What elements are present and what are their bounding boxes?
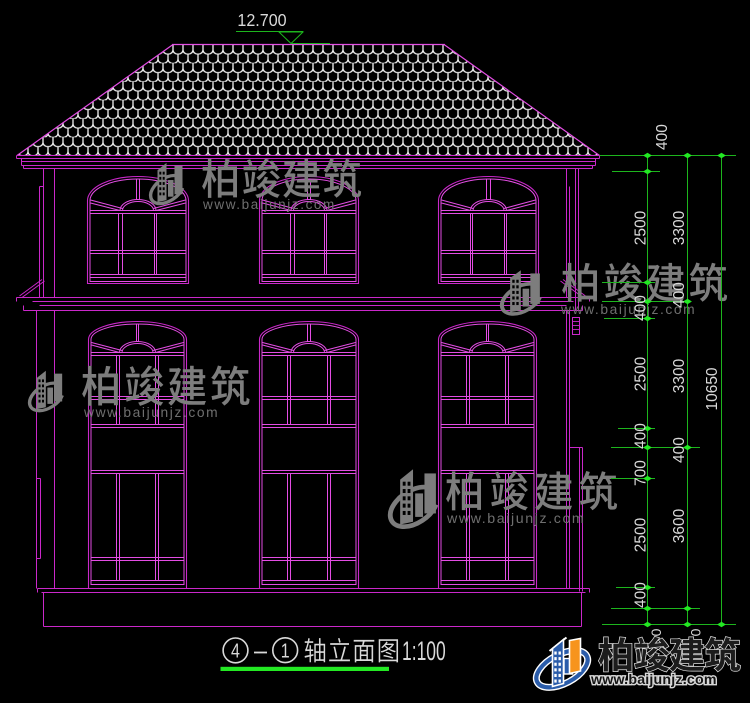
svg-text:2500: 2500 [633,356,650,391]
svg-text:400: 400 [633,423,650,449]
svg-text:0: 0 [688,628,704,636]
svg-text:www.baijunjz.com: www.baijunjz.com [446,511,585,527]
svg-text:400: 400 [671,437,688,463]
svg-text:700: 700 [633,460,650,486]
svg-text:10650: 10650 [704,367,721,410]
svg-text:www.baijunjz.com: www.baijunjz.com [202,197,336,212]
svg-text:12.700: 12.700 [237,10,286,30]
svg-text:www.baijunjz.com: www.baijunjz.com [83,405,219,420]
svg-text:2500: 2500 [633,210,650,245]
svg-text:400: 400 [671,282,688,308]
svg-text:www.baijunjz.com: www.baijunjz.com [590,672,717,688]
svg-text:1: 1 [281,640,290,662]
svg-text:2500: 2500 [633,517,650,552]
svg-text:1:100: 1:100 [402,636,446,666]
svg-text:400: 400 [633,582,650,608]
svg-text:3600: 3600 [671,508,688,543]
svg-text:3300: 3300 [671,358,688,393]
svg-text:4: 4 [231,640,240,662]
svg-text:3300: 3300 [671,210,688,245]
svg-text:0: 0 [648,628,664,636]
svg-text:400: 400 [654,124,671,150]
svg-text:400: 400 [633,295,650,321]
